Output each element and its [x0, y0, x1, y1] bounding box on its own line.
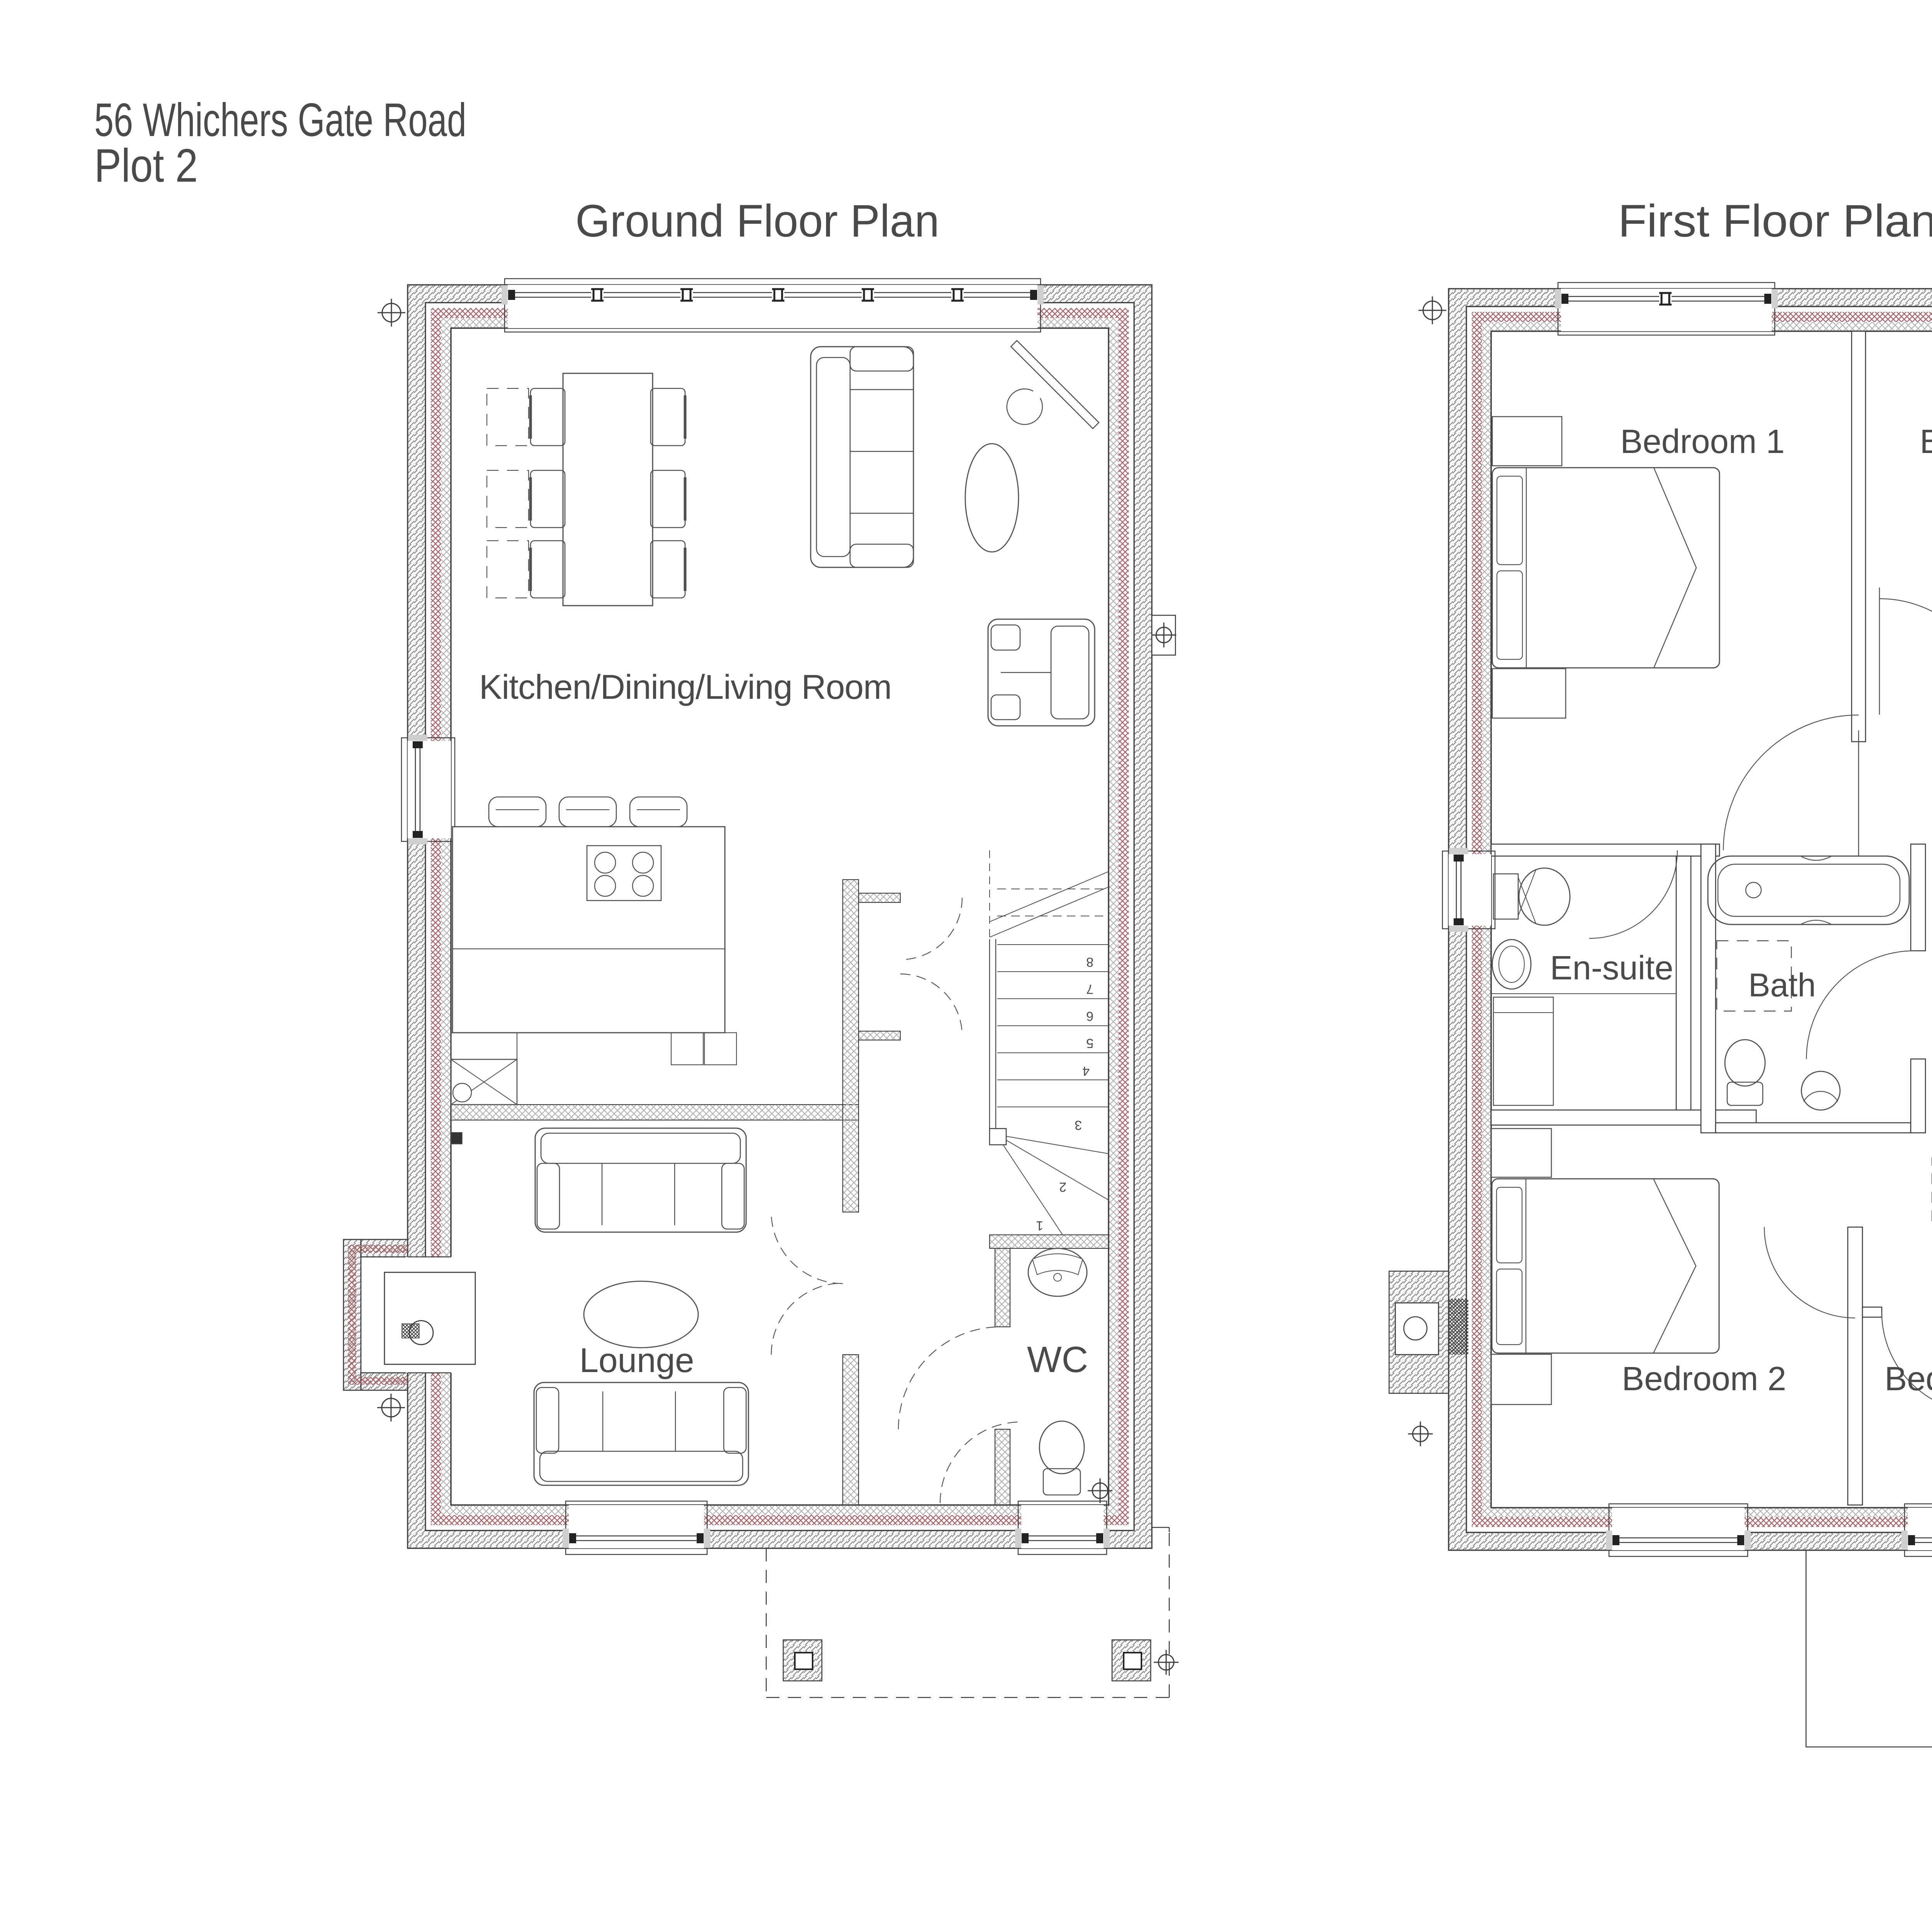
svg-text:Bedroom 4: Bedroom 4: [1884, 1360, 1932, 1398]
svg-text:Bedroom 2: Bedroom 2: [1622, 1360, 1786, 1398]
svg-text:5: 5: [1086, 1036, 1094, 1050]
svg-text:En-suite: En-suite: [1550, 949, 1673, 987]
svg-text:WC: WC: [1027, 1339, 1088, 1380]
svg-text:Bedroom 1: Bedroom 1: [1620, 423, 1785, 460]
svg-text:Plot 2: Plot 2: [94, 139, 198, 192]
svg-text:4: 4: [1082, 1064, 1090, 1078]
svg-text:Ground Floor Plan: Ground Floor Plan: [575, 196, 939, 247]
svg-text:8: 8: [1086, 955, 1094, 969]
svg-text:3: 3: [1075, 1118, 1082, 1132]
svg-text:Kitchen/Dining/Living Room: Kitchen/Dining/Living Room: [479, 667, 891, 706]
svg-text:56 Whichers Gate Road: 56 Whichers Gate Road: [94, 94, 466, 146]
svg-text:Lounge: Lounge: [580, 1341, 694, 1379]
svg-text:7: 7: [1086, 982, 1094, 996]
svg-text:Bedroom 3: Bedroom 3: [1920, 423, 1932, 460]
svg-text:2: 2: [1059, 1180, 1066, 1194]
svg-text:Bath: Bath: [1748, 967, 1816, 1004]
svg-text:6: 6: [1086, 1009, 1094, 1023]
svg-text:1: 1: [1036, 1218, 1043, 1233]
svg-text:First Floor Plan: First Floor Plan: [1618, 196, 1932, 247]
